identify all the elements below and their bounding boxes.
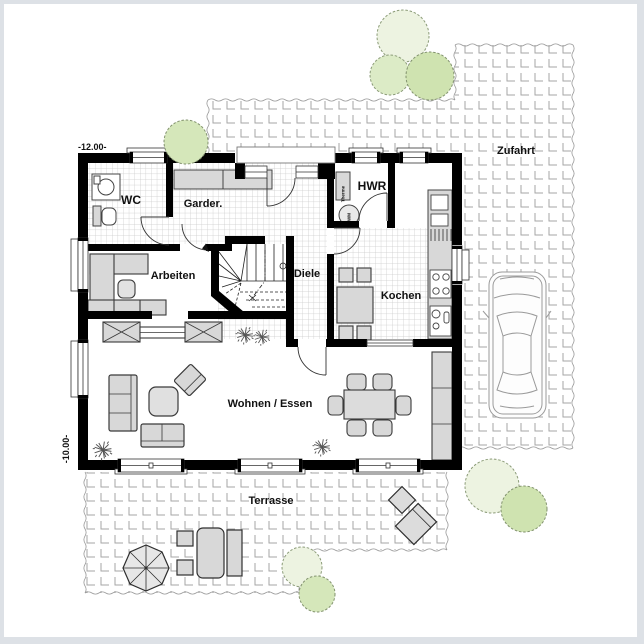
label-diele: Diele <box>294 268 320 280</box>
kitchen-counter <box>428 190 452 339</box>
bush <box>299 576 335 612</box>
floor-plan-page: Therme WM <box>0 0 644 644</box>
label-zufahrt: Zufahrt <box>497 145 535 157</box>
floor-plan-drawing: Therme WM <box>0 0 644 644</box>
entry-canopy <box>237 147 335 163</box>
bush <box>406 52 454 100</box>
label-wohnen-essen: Wohnen / Essen <box>228 398 313 410</box>
label-garderobe: Garder. <box>184 198 223 210</box>
bush <box>370 55 410 95</box>
label-wc: WC <box>121 193 141 207</box>
wc-fixtures <box>92 174 120 226</box>
terrace-table <box>197 528 224 578</box>
terrace-chair <box>177 531 193 546</box>
terrace-chair <box>177 560 193 575</box>
bush <box>501 486 547 532</box>
label-arbeiten: Arbeiten <box>151 270 196 282</box>
dim-bottom-left: -10.00- <box>61 435 71 464</box>
therme-label: Therme <box>341 185 346 202</box>
bush <box>164 120 208 164</box>
dim-top-left: -12.00- <box>78 142 107 152</box>
car <box>483 272 551 418</box>
wm-label: WM <box>347 213 352 221</box>
sideboard-right <box>432 352 452 460</box>
terrace-bench <box>227 530 242 576</box>
label-kochen: Kochen <box>381 290 422 302</box>
label-terrasse: Terrasse <box>248 495 293 507</box>
label-hwr: HWR <box>358 179 387 193</box>
